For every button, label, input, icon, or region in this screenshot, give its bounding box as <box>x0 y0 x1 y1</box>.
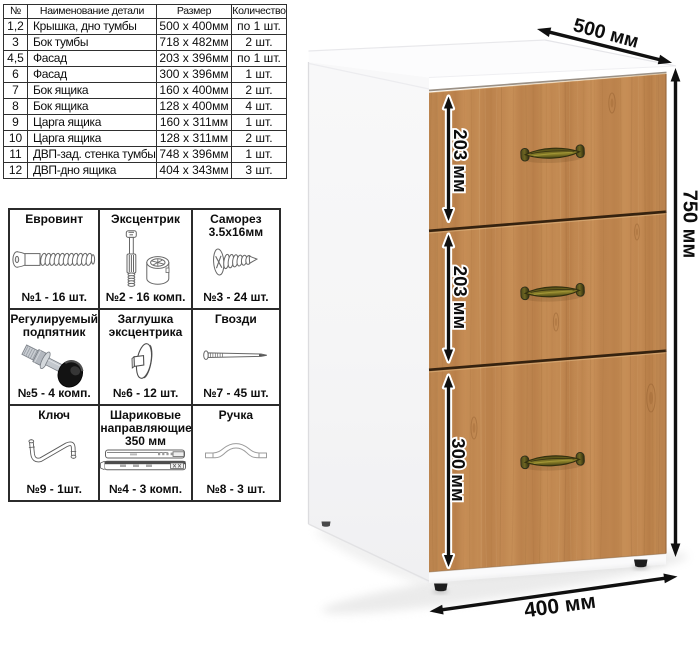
svg-text:750 мм: 750 мм <box>679 190 700 259</box>
svg-text:203 мм: 203 мм <box>450 129 471 192</box>
svg-text:300 мм: 300 мм <box>448 438 469 501</box>
svg-text:203 мм: 203 мм <box>450 266 471 329</box>
svg-text:400 мм: 400 мм <box>523 590 597 623</box>
